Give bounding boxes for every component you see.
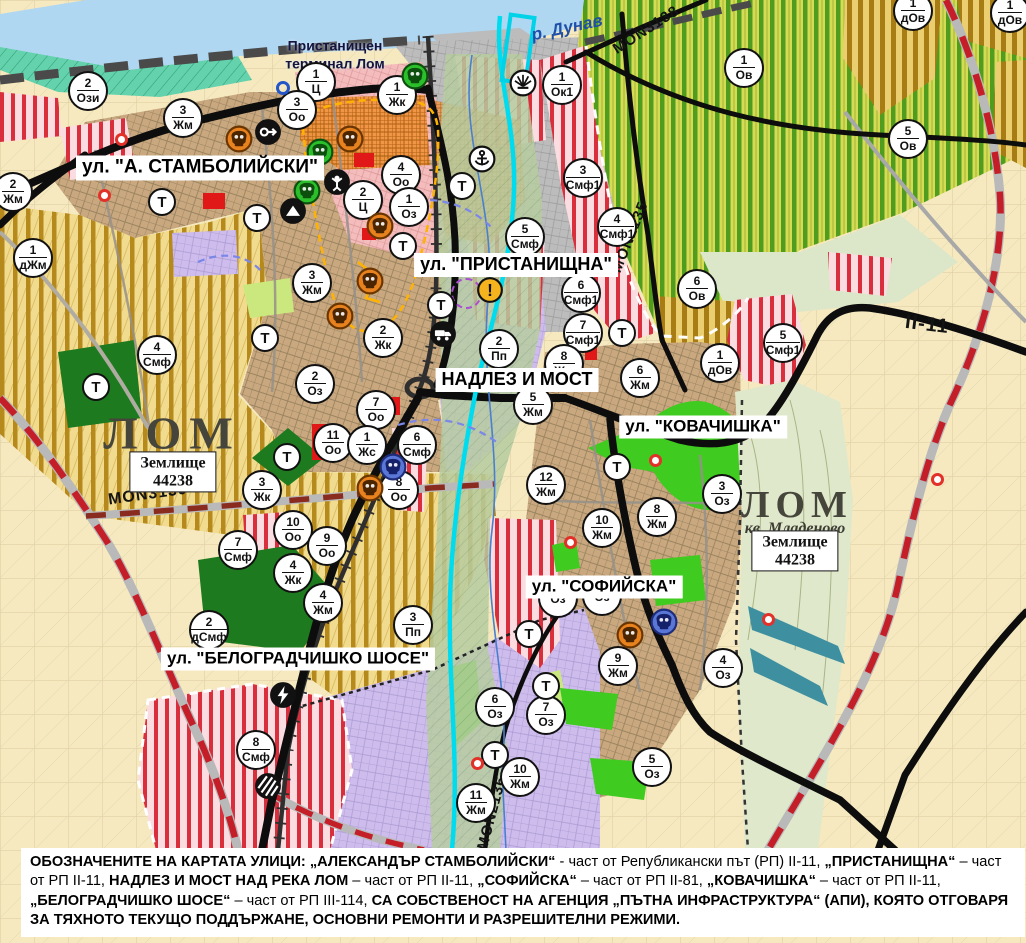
- orange-monument-icon: [326, 302, 354, 330]
- zone-marker: 4Жм: [303, 583, 343, 623]
- orange-monument-icon: [366, 212, 394, 240]
- orange-monument-icon: [336, 125, 364, 153]
- orange-monument-icon: [356, 474, 384, 502]
- transport-marker: Т: [448, 172, 476, 200]
- zone-code: Оо: [282, 529, 304, 544]
- land-unit-box: Землище44238: [751, 530, 838, 571]
- blue-ring: [276, 81, 290, 95]
- zone-code: Оз: [641, 766, 663, 781]
- orange-monument-icon: [225, 125, 253, 153]
- zone-number: 4: [154, 341, 161, 354]
- zone-code: Смф1: [600, 226, 635, 241]
- zone-marker: 11Жм: [456, 783, 496, 823]
- zone-marker: 3Оо: [277, 90, 317, 130]
- zone-code: Оз: [711, 493, 733, 508]
- port-terminal-line1: Пристанищен: [288, 38, 383, 54]
- zone-number: 4: [290, 559, 297, 572]
- street-label: ул. "КОВАЧИШКА": [619, 416, 787, 439]
- orange-monument-icon: [616, 621, 644, 649]
- land-unit-name: Землище: [762, 533, 827, 550]
- caption-segment: „СОФИЙСКА“: [477, 873, 577, 889]
- zone-number: 2: [206, 616, 213, 629]
- zone-number: 10: [513, 763, 526, 776]
- stop-dot: [98, 189, 111, 202]
- zone-code: Оо: [286, 109, 308, 124]
- svg-text:!: !: [487, 280, 493, 300]
- person-icon: [323, 168, 351, 196]
- zone-number: 6: [578, 279, 585, 292]
- zone-number: 1: [910, 0, 917, 10]
- zone-number: 2: [312, 370, 319, 383]
- transport-marker: Т: [532, 672, 560, 700]
- zone-number: 1: [717, 349, 724, 362]
- transport-marker: Т: [603, 453, 631, 481]
- zone-marker: 9Оо: [307, 526, 347, 566]
- zone-marker: 9Жм: [598, 646, 638, 686]
- stop-dot: [115, 133, 128, 146]
- zone-code: Жк: [386, 94, 408, 109]
- zone-number: 1: [1007, 0, 1014, 12]
- zone-number: 1: [30, 244, 37, 257]
- zone-marker: 5Оз: [632, 747, 672, 787]
- street-label: ул. "ПРИСТАНИЩНА": [414, 253, 618, 277]
- zone-marker: 1дЖм: [13, 238, 53, 278]
- zone-number: 3: [294, 96, 301, 109]
- zone-number: 8: [253, 736, 260, 749]
- stop-dot: [762, 613, 775, 626]
- transport-marker: Т: [608, 319, 636, 347]
- transport-marker: Т: [515, 620, 543, 648]
- land-unit-number: 44238: [775, 551, 815, 568]
- zone-marker: 1Ов: [724, 48, 764, 88]
- transport-marker: Т: [427, 291, 455, 319]
- zone-number: 6: [637, 364, 644, 377]
- transport-marker: Т: [251, 324, 279, 352]
- zone-number: 3: [309, 269, 316, 282]
- caption-segment: - част от Републикански път (РП) II-11,: [555, 854, 824, 870]
- zone-number: 6: [492, 693, 499, 706]
- zone-code: Жк: [372, 337, 394, 352]
- zone-number: 7: [373, 396, 380, 409]
- road-code-label: MON3138: [610, 2, 682, 57]
- zone-number: 5: [649, 753, 656, 766]
- orange-monument-icon: [356, 267, 384, 295]
- zone-code: Жк: [251, 489, 273, 504]
- zone-marker: 3Жк: [242, 470, 282, 510]
- caption-segment: – част от РП II-81,: [577, 873, 707, 889]
- zone-code: Смф1: [766, 342, 801, 357]
- zone-code: Оз: [712, 667, 734, 682]
- zone-marker: 6Оз: [475, 687, 515, 727]
- zone-code: Жм: [465, 802, 487, 817]
- zone-code: дОв: [901, 10, 925, 25]
- zone-marker: 8Жм: [637, 497, 677, 537]
- zone-code: Оо: [322, 442, 344, 457]
- zone-marker: 2Ози: [68, 71, 108, 111]
- zone-code: Смф: [511, 236, 539, 251]
- caption-segment: – част от РП III-114,: [230, 893, 371, 909]
- zone-number: 1: [406, 193, 413, 206]
- zone-number: 3: [259, 476, 266, 489]
- zone-marker: 6Ов: [677, 269, 717, 309]
- zone-marker: 5Ов: [888, 119, 928, 159]
- zone-marker: 12Жм: [526, 465, 566, 505]
- zone-marker: 4Смф1: [597, 207, 637, 247]
- zone-code: Оо: [365, 409, 387, 424]
- zone-number: 1: [364, 431, 371, 444]
- zone-marker: 2Оз: [295, 364, 335, 404]
- map-overlay: 2Ози1Ц3Оо1Жк1Ок13Жм2Жм1дЖм4Смф4Оо2Ц1Оз3Ж…: [0, 0, 1026, 943]
- zone-marker: 6Смф1: [561, 273, 601, 313]
- zone-number: 3: [580, 164, 587, 177]
- zone-code: Жм: [646, 516, 668, 531]
- zone-marker: 7Оз: [526, 695, 566, 735]
- zone-marker: 4Смф: [137, 335, 177, 375]
- zone-code: Ов: [897, 138, 919, 153]
- zone-marker: 3Жм: [292, 263, 332, 303]
- zone-code: Ов: [686, 288, 708, 303]
- zone-number: 4: [320, 589, 327, 602]
- caption-segment: „ПРИСТАНИЩНА“: [824, 854, 955, 870]
- transport-marker: Т: [273, 443, 301, 471]
- zone-number: 5: [905, 125, 912, 138]
- zone-code: Жм: [607, 665, 629, 680]
- zone-number: 9: [324, 532, 331, 545]
- zone-number: 5: [522, 223, 529, 236]
- warning-icon: !: [476, 276, 504, 304]
- zone-code: Ок1: [551, 84, 573, 99]
- zone-marker: 1дОв: [700, 343, 740, 383]
- caption-box: ОБОЗНАЧЕНИТЕ НА КАРТАТА УЛИЦИ: „АЛЕКСАНД…: [21, 848, 1025, 937]
- crossing-icon: [254, 772, 282, 800]
- land-unit-box: Землище44238: [129, 451, 216, 492]
- caption-segment: НАДЛЕЗ И МОСТ НАД РЕКА ЛОМ: [109, 873, 348, 889]
- zone-code: Ози: [77, 90, 100, 105]
- transport-marker: Т: [148, 188, 176, 216]
- mountain-icon: [279, 197, 307, 225]
- zone-number: 11: [327, 429, 340, 442]
- zone-code: Пп: [402, 624, 424, 639]
- zone-code: Ов: [733, 67, 755, 82]
- zone-code: Жм: [509, 776, 531, 791]
- stop-dot: [564, 536, 577, 549]
- transport-marker: Т: [82, 373, 110, 401]
- zone-number: 10: [286, 516, 299, 529]
- transport-marker: Т: [243, 204, 271, 232]
- map-viewport: 2Ози1Ц3Оо1Жк1Ок13Жм2Жм1дЖм4Смф4Оо2Ц1Оз3Ж…: [0, 0, 1026, 943]
- arrow-icon: [254, 118, 282, 146]
- zone-number: 8: [654, 503, 661, 516]
- zone-marker: 1дОв: [990, 0, 1026, 33]
- zone-marker: 1дОв: [893, 0, 933, 31]
- zone-number: 2: [360, 186, 367, 199]
- zone-number: 3: [180, 104, 187, 117]
- zone-number: 1: [741, 54, 748, 67]
- zone-code: Смф: [242, 749, 270, 764]
- zone-number: 7: [580, 319, 587, 332]
- zone-number: 7: [543, 701, 550, 714]
- zone-code: Пп: [488, 348, 510, 363]
- zone-marker: 7Смф: [218, 530, 258, 570]
- zone-number: 3: [719, 480, 726, 493]
- zone-number: 6: [414, 431, 421, 444]
- street-label: ул. "А. СТАМБОЛИЙСКИ": [76, 156, 324, 181]
- zone-marker: 3Пп: [393, 605, 433, 645]
- zone-marker: 3Смф1: [563, 158, 603, 198]
- stop-dot: [931, 473, 944, 486]
- street-label: ул. "СОФИЙСКА": [526, 576, 683, 599]
- zone-code: Жк: [282, 572, 304, 587]
- port-terminal-label: Пристанищен терминал Лом: [285, 38, 385, 73]
- zone-code: Оо: [316, 545, 338, 560]
- blue-monument-icon: [650, 608, 678, 636]
- zone-marker: 1Оз: [389, 187, 429, 227]
- zone-code: Оо: [388, 489, 410, 504]
- zone-code: Смф: [224, 549, 252, 564]
- zone-number: 9: [615, 652, 622, 665]
- zone-code: Жм: [629, 377, 651, 392]
- zone-marker: 6Жм: [620, 358, 660, 398]
- caption-segment: „БЕЛОГРАДЧИШКО ШОСЕ“: [30, 893, 230, 909]
- anchor-icon: [468, 145, 496, 173]
- zone-code: Жм: [535, 484, 557, 499]
- zone-number: 8: [561, 350, 568, 363]
- zone-code: Смф1: [564, 292, 599, 307]
- zone-number: 6: [694, 275, 701, 288]
- zone-marker: 1Ок1: [542, 65, 582, 105]
- zone-number: 4: [720, 654, 727, 667]
- zone-code: дЖм: [19, 257, 46, 272]
- zone-code: Смф: [143, 354, 171, 369]
- zone-number: 2: [380, 324, 387, 337]
- zone-number: 2: [85, 77, 92, 90]
- transport-marker: Т: [481, 741, 509, 769]
- street-label: ул. "БЕЛОГРАДЧИШКО ШОСЕ": [161, 648, 435, 671]
- zone-marker: 2Жм: [0, 172, 33, 212]
- zone-number: 5: [530, 391, 537, 404]
- sun-icon: [509, 69, 537, 97]
- zone-marker: 4Жк: [273, 553, 313, 593]
- zone-number: 1: [313, 68, 320, 81]
- lightning-icon: [269, 681, 297, 709]
- zone-number: 5: [780, 329, 787, 342]
- zone-code: Жм: [522, 404, 544, 419]
- green-monument-icon: [401, 62, 429, 90]
- zone-marker: 3Жм: [163, 98, 203, 138]
- zone-number: 1: [559, 71, 566, 84]
- zone-marker: 5Смф1: [763, 323, 803, 363]
- zone-code: Жм: [172, 117, 194, 132]
- road-code-label: II-11: [904, 311, 950, 339]
- land-unit-name: Землище: [140, 454, 205, 471]
- zone-number: 10: [595, 514, 608, 527]
- truck-icon: [429, 320, 457, 348]
- stop-dot: [649, 454, 662, 467]
- zone-number: 4: [398, 161, 405, 174]
- zone-number: 2: [10, 178, 17, 191]
- zone-code: Жм: [591, 527, 613, 542]
- zone-number: 11: [470, 789, 483, 802]
- zone-marker: 2Пп: [479, 329, 519, 369]
- zone-marker: 8Смф: [236, 730, 276, 770]
- zone-marker: 10Жм: [582, 508, 622, 548]
- zone-code: Смф1: [566, 177, 601, 192]
- zone-marker: 5Смф: [505, 217, 545, 257]
- zone-code: Жм: [301, 282, 323, 297]
- zone-code: Оз: [304, 383, 326, 398]
- zone-marker: 2Жк: [363, 318, 403, 358]
- zone-code: Оз: [535, 714, 557, 729]
- zone-number: 4: [614, 213, 621, 226]
- zone-code: Жм: [312, 602, 334, 617]
- street-label: НАДЛЕЗ И МОСТ: [436, 368, 599, 392]
- zone-marker: 3Оз: [702, 474, 742, 514]
- zone-number: 1: [394, 81, 401, 94]
- caption-segment: „КОВАЧИШКА“: [707, 873, 816, 889]
- zone-number: 2: [496, 335, 503, 348]
- land-unit-number: 44238: [153, 472, 193, 489]
- zone-number: 12: [539, 471, 552, 484]
- zone-number: 7: [235, 536, 242, 549]
- stop-dot: [471, 757, 484, 770]
- zone-code: Оз: [484, 706, 506, 721]
- zone-code: Жм: [2, 191, 24, 206]
- zone-marker: 2дСмф: [189, 610, 229, 650]
- zone-marker: 7Оо: [356, 390, 396, 430]
- caption-segment: – част от РП II-11,: [816, 873, 941, 889]
- zone-code: Оз: [398, 206, 420, 221]
- zone-code: дСмф: [191, 629, 227, 644]
- zone-code: дОв: [708, 362, 732, 377]
- caption-segment: ОБОЗНАЧЕНИТЕ НА КАРТАТА УЛИЦИ: „АЛЕКСАНД…: [30, 854, 555, 870]
- zone-marker: 4Оз: [703, 648, 743, 688]
- zone-code: Смф: [403, 444, 431, 459]
- zone-code: дОв: [998, 12, 1022, 27]
- zone-number: 3: [410, 611, 417, 624]
- zone-code: Жс: [356, 444, 378, 459]
- caption-segment: – част от РП II-11,: [348, 873, 477, 889]
